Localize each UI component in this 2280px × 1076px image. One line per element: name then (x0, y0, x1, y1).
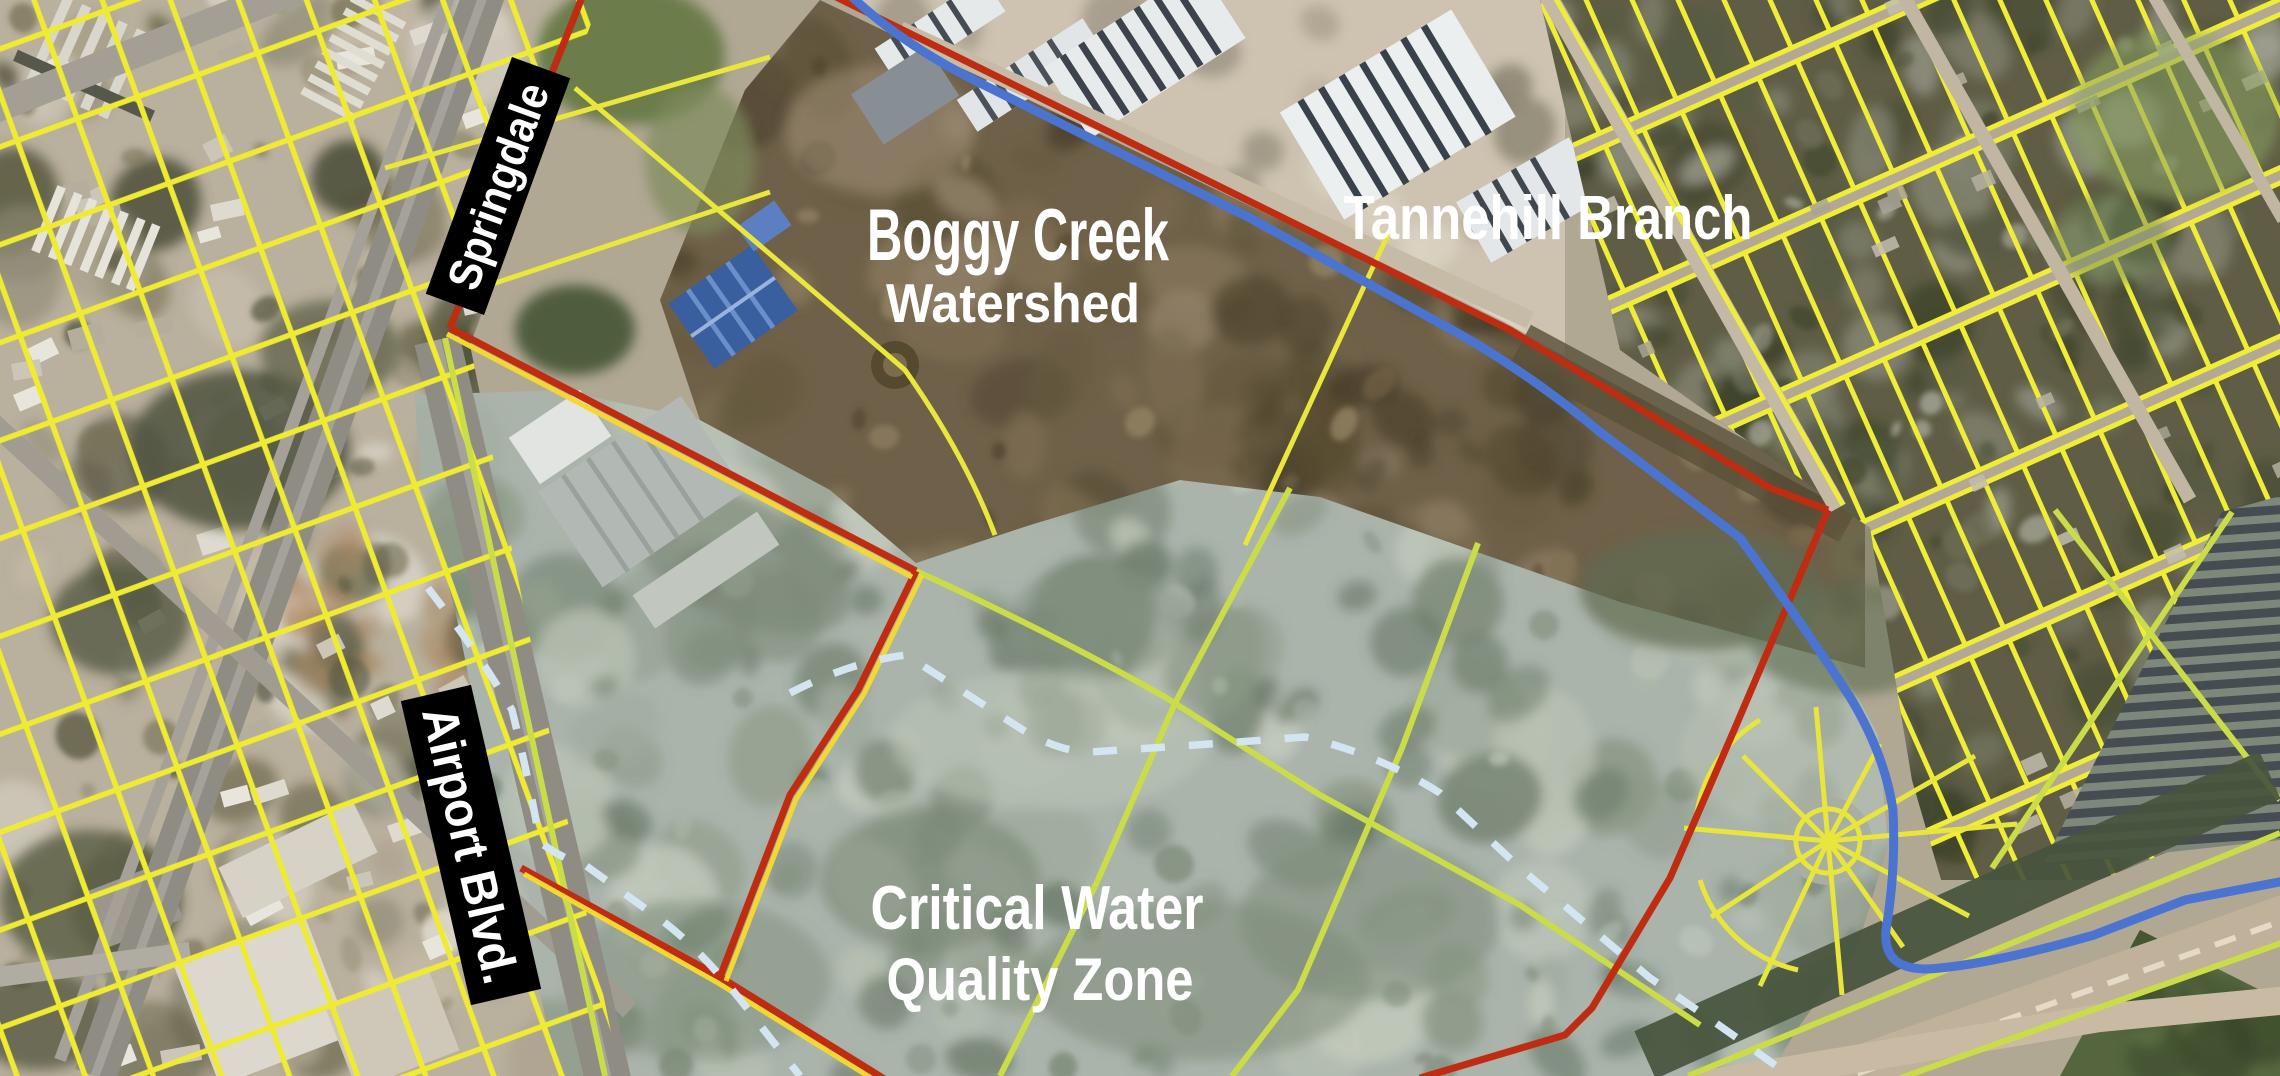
svg-text:Quality Zone: Quality Zone (887, 946, 1194, 1013)
svg-text:Watershed: Watershed (886, 272, 1140, 334)
svg-text:Boggy Creek: Boggy Creek (867, 195, 1169, 276)
svg-text:Critical Water: Critical Water (871, 874, 1204, 943)
svg-text:Tannehill Branch: Tannehill Branch (1344, 184, 1753, 253)
